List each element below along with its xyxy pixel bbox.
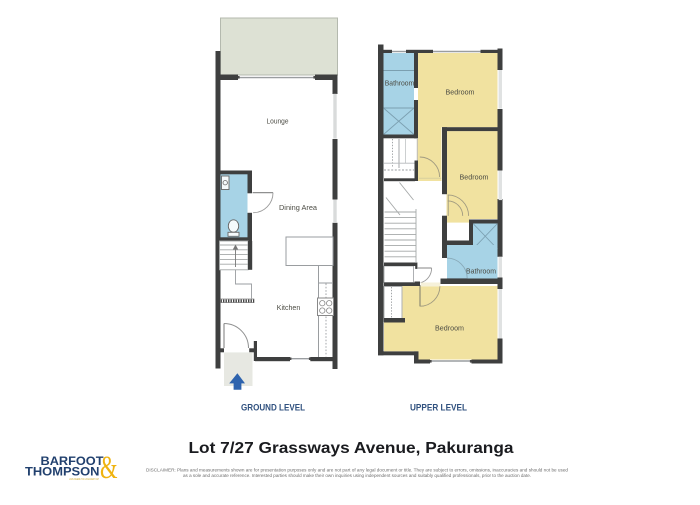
svg-text:GROUND LEVEL: GROUND LEVEL xyxy=(241,402,305,413)
svg-text:DISCLAIMER: Plans and measurem: DISCLAIMER: Plans and measurements shown… xyxy=(146,468,568,474)
svg-text:LOVE WHERE YOU LIVE EVERY DAY: LOVE WHERE YOU LIVE EVERY DAY xyxy=(69,477,99,481)
svg-text:Bathroom: Bathroom xyxy=(466,267,496,276)
svg-text:THOMPSON: THOMPSON xyxy=(25,467,100,479)
svg-text:Bathroom: Bathroom xyxy=(385,79,415,88)
svg-text:&: & xyxy=(100,450,118,486)
svg-text:Bedroom: Bedroom xyxy=(446,88,475,97)
svg-text:as a sole and accurate referen: as a sole and accurate reference. Intere… xyxy=(183,473,531,479)
svg-text:Bedroom: Bedroom xyxy=(460,173,489,182)
svg-text:UPPER LEVEL: UPPER LEVEL xyxy=(410,402,467,413)
svg-text:Bedroom: Bedroom xyxy=(435,324,464,333)
svg-text:Dining Area: Dining Area xyxy=(279,203,318,212)
svg-text:Lot 7/27 Grassways Avenue, Pak: Lot 7/27 Grassways Avenue, Pakuranga xyxy=(189,440,514,457)
svg-text:Lounge: Lounge xyxy=(267,117,289,126)
svg-text:Kitchen: Kitchen xyxy=(277,303,301,312)
